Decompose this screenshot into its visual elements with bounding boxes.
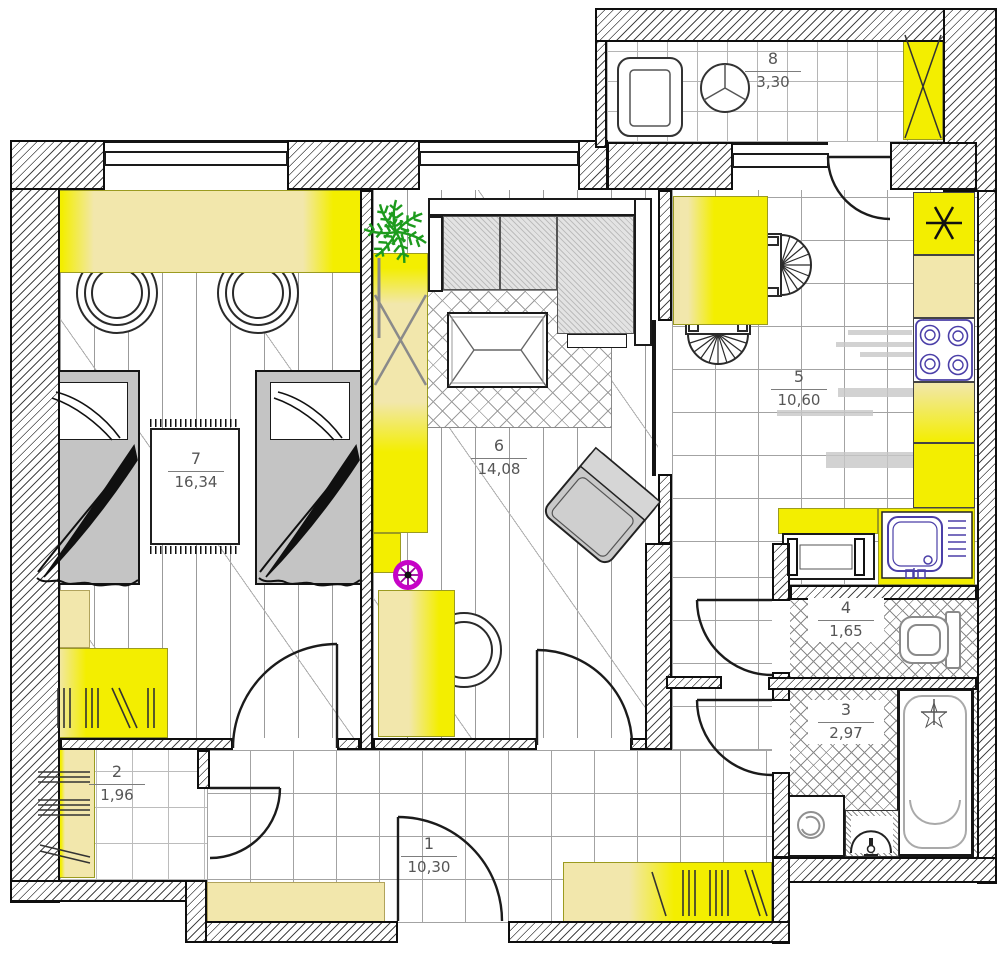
rug-fringe [150, 546, 240, 554]
wall-segment [977, 190, 997, 884]
kitchen-counter [913, 443, 975, 508]
room-area: 16,34 [175, 474, 218, 491]
wall-segment [890, 142, 977, 190]
tv-cabinet [373, 253, 428, 533]
shadow-streak [777, 410, 873, 416]
room-number: 3 [841, 701, 851, 719]
room-number: 7 [191, 450, 201, 468]
wall-segment [607, 142, 733, 190]
room-number: 8 [768, 50, 778, 68]
sofa-footrest [567, 334, 627, 348]
room-label-bath: 3 2,97 [808, 700, 884, 744]
label-divider [745, 71, 801, 72]
room-label-hall: 1 10,30 [401, 835, 457, 875]
sofa-chaise [557, 216, 634, 334]
shadow-streak [836, 342, 914, 347]
wall-segment [10, 140, 60, 903]
room-number: 5 [794, 368, 804, 386]
kitchen-bench [782, 533, 875, 580]
room-area: 14,08 [478, 461, 521, 478]
room-area: 10,30 [408, 859, 451, 876]
sofa-armrest [428, 216, 443, 292]
wall-segment [287, 140, 420, 190]
wc-wall [772, 543, 790, 601]
bathtub [897, 688, 974, 857]
wall-segment [772, 857, 997, 883]
wall-segment [10, 140, 105, 190]
partition-wall [60, 738, 233, 750]
balcony-window [733, 142, 828, 190]
kitchen-counter [913, 255, 975, 318]
partition-wall [645, 543, 672, 750]
sofa-cushion [500, 216, 557, 290]
room-number: 4 [841, 599, 851, 617]
hall-bench [207, 882, 385, 922]
partition-wall [337, 738, 360, 750]
wc-bath-wall [666, 676, 722, 689]
partition-wall [360, 190, 373, 750]
room-label-wc: 4 1,65 [808, 598, 884, 642]
partition-wall [373, 738, 537, 750]
hall-wardrobe [563, 862, 772, 922]
room-label-closet: 2 1,96 [89, 763, 145, 803]
room-area: 3,30 [756, 74, 789, 91]
label-divider [168, 471, 224, 472]
partition-glazing [652, 320, 656, 476]
sofa-cushion [443, 216, 500, 290]
fridge [913, 192, 975, 255]
label-divider [401, 856, 457, 857]
stove [913, 318, 975, 382]
living-side-cabinet [373, 533, 401, 573]
kitchen-counter [778, 508, 878, 534]
wall-segment [10, 880, 187, 902]
label-divider [471, 458, 527, 459]
closet-wall [197, 750, 210, 789]
room-area: 10,60 [778, 392, 821, 409]
kitchen-table [673, 196, 768, 325]
wall-segment [185, 921, 398, 943]
living-desk [378, 590, 455, 737]
label-divider [818, 722, 874, 723]
bedroom-desk [33, 190, 362, 273]
bedroom-window [105, 140, 287, 190]
living-window [420, 140, 578, 190]
room-number: 6 [494, 437, 504, 455]
room-label-kitchen: 5 10,60 [771, 368, 827, 408]
wall-segment [185, 880, 207, 943]
wc-bath-wall [768, 677, 977, 690]
pillow [270, 382, 350, 440]
sink-counter [878, 508, 975, 585]
label-divider [818, 620, 874, 621]
room-area: 1,65 [829, 623, 862, 640]
room-label-bedroom: 7 16,34 [168, 450, 224, 490]
partition-pier [658, 474, 672, 544]
wc-wall [772, 772, 790, 858]
balcony-wall [595, 8, 997, 42]
shadow-streak [860, 352, 916, 357]
room-area: 2,97 [829, 725, 862, 742]
sofa-back [428, 198, 652, 216]
pillow [48, 382, 128, 440]
label-divider [89, 784, 145, 785]
partition-pier [658, 190, 672, 321]
wall-segment [508, 921, 790, 943]
coffee-table [447, 312, 548, 388]
wash-basin-inner [851, 816, 893, 852]
room-area: 1,96 [100, 787, 133, 804]
floor-plan: 7 16,34 6 14,08 5 10,60 8 3,30 4 1,65 3 … [0, 0, 1000, 956]
rug-fringe [150, 419, 240, 427]
room-label-balcony: 8 3,30 [745, 50, 801, 90]
sofa-side [634, 198, 652, 346]
kitchen-corridor-floor [672, 543, 772, 750]
balcony-cabinet [903, 33, 943, 140]
kitchen-counter [913, 382, 975, 443]
label-divider [771, 389, 827, 390]
shadow-streak [848, 330, 912, 335]
room-number: 2 [112, 763, 122, 781]
room-number: 1 [424, 835, 434, 853]
room-label-living: 6 14,08 [471, 437, 527, 477]
